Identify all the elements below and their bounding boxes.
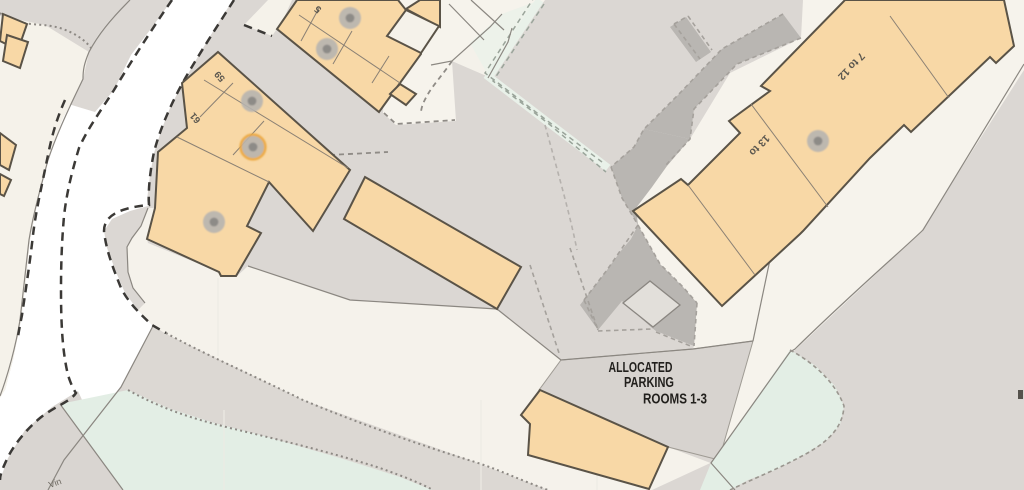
- svg-text:ROOMS 1-3: ROOMS 1-3: [643, 392, 707, 408]
- svg-text:ALLOCATED: ALLOCATED: [609, 360, 673, 376]
- svg-text:PARKING: PARKING: [624, 375, 674, 391]
